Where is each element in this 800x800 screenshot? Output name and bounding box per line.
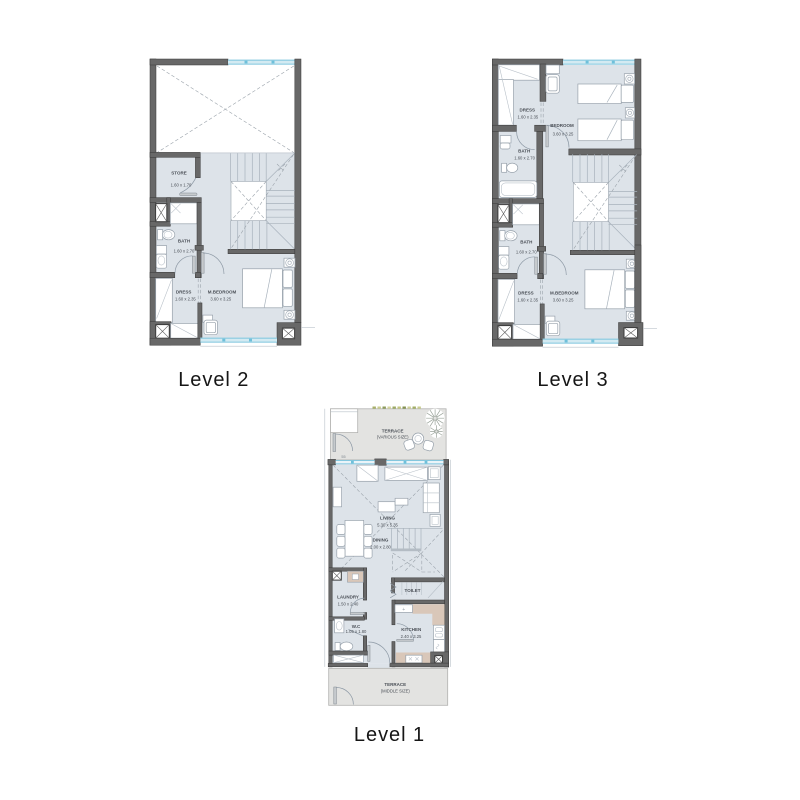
svg-text:(MIDDLE SIZE): (MIDDLE SIZE) xyxy=(381,689,411,694)
svg-text:Level 2: Level 2 xyxy=(178,369,249,391)
svg-text:+: + xyxy=(402,607,405,613)
svg-text:BEDROOM: BEDROOM xyxy=(550,123,574,128)
svg-text:KITCHEN: KITCHEN xyxy=(401,627,421,632)
svg-text:BATH: BATH xyxy=(518,149,530,154)
svg-text:TERRACE: TERRACE xyxy=(382,429,404,434)
svg-text:5.30 x 5.35: 5.30 x 5.35 xyxy=(377,523,398,528)
svg-text:LIVING: LIVING xyxy=(380,516,396,521)
svg-text:TERRACE: TERRACE xyxy=(384,682,406,687)
svg-text:3.60 x 3.25: 3.60 x 3.25 xyxy=(553,132,574,137)
svg-text:55: 55 xyxy=(341,455,345,459)
svg-text:1.60 x 2.70: 1.60 x 2.70 xyxy=(514,156,535,161)
svg-text:2.40 x 3.25: 2.40 x 3.25 xyxy=(401,634,422,639)
svg-text:DINING: DINING xyxy=(373,538,389,543)
svg-text:Level 3: Level 3 xyxy=(537,369,608,391)
svg-text:LAUNDRY: LAUNDRY xyxy=(337,595,359,600)
svg-text:1.60 x 2.35: 1.60 x 2.35 xyxy=(518,115,539,120)
svg-text:DRESS: DRESS xyxy=(520,108,536,113)
svg-text:Level 1: Level 1 xyxy=(354,724,425,746)
svg-text:1.60 x 1.70: 1.60 x 1.70 xyxy=(171,183,192,188)
svg-text:(VARIOUS SIZE): (VARIOUS SIZE) xyxy=(377,435,409,440)
svg-text:2.00 x 2.80: 2.00 x 2.80 xyxy=(370,545,391,550)
svg-text:STORE: STORE xyxy=(171,171,186,176)
svg-text:1.05 x 1.80: 1.05 x 1.80 xyxy=(346,629,367,634)
svg-text:TOILET: TOILET xyxy=(405,588,421,593)
svg-text:1.50 x 2.40: 1.50 x 2.40 xyxy=(338,602,359,607)
